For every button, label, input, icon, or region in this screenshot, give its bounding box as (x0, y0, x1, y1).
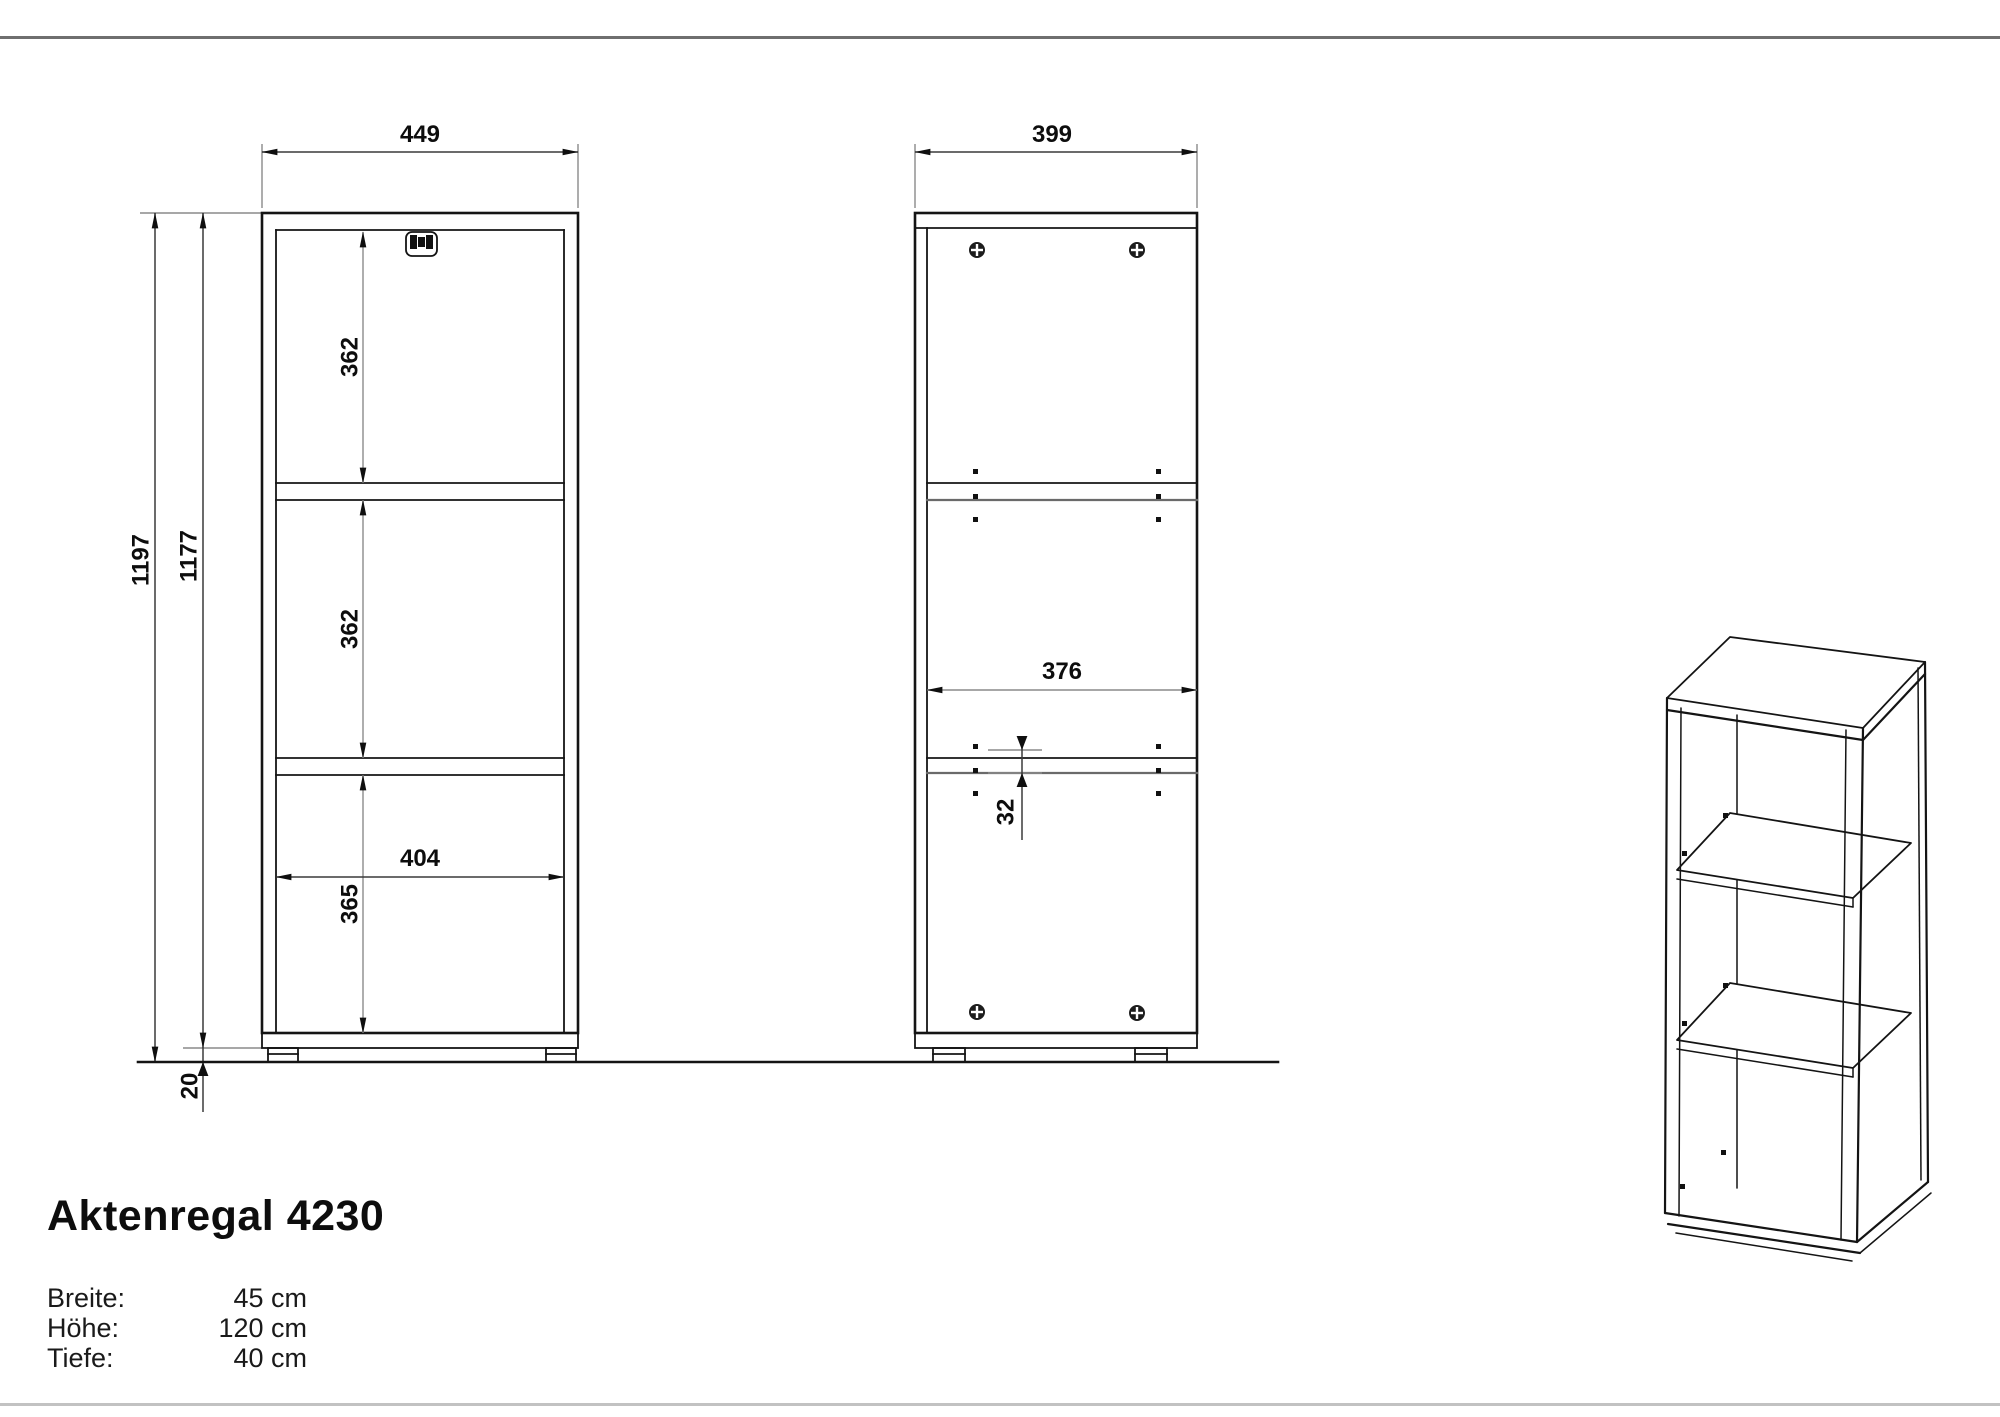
spec-value: 40 cm (195, 1343, 307, 1373)
spec-list: Breite: 45 cm Höhe: 120 cm Tiefe: 40 cm (47, 1283, 307, 1373)
screw-icon (969, 1004, 985, 1020)
front-cabinet-outline (262, 213, 578, 1033)
side-plinth (915, 1033, 1197, 1048)
front-feet (268, 1048, 576, 1062)
spec-row-hoehe: Höhe: 120 cm (47, 1313, 307, 1343)
screw-icon (1129, 242, 1145, 258)
front-section-middle-label: 362 (337, 609, 364, 649)
spec-label: Breite: (47, 1283, 195, 1313)
front-section-top-label: 362 (337, 337, 364, 377)
iso-view (1665, 637, 1931, 1261)
side-view: 399 (915, 121, 1197, 1062)
foot-height-label: 20 (177, 1073, 204, 1100)
spec-label: Tiefe: (47, 1343, 195, 1373)
front-total-height-label: 1197 (128, 534, 155, 586)
iso-shelves (1677, 813, 1911, 1077)
side-depth-label: 399 (1032, 121, 1072, 148)
spec-value: 45 cm (195, 1283, 307, 1313)
front-plinth (262, 1033, 578, 1048)
front-section-bottom-label: 365 (337, 884, 364, 924)
front-body-height-label: 1177 (176, 530, 203, 582)
product-title: Aktenregal 4230 (47, 1192, 384, 1241)
side-cabinet-outline (915, 213, 1197, 1033)
iso-base (1665, 1182, 1931, 1261)
front-width-label: 449 (400, 121, 440, 148)
side-inner-depth-label: 376 (1042, 658, 1082, 685)
spec-row-tiefe: Tiefe: 40 cm (47, 1343, 307, 1373)
spec-label: Höhe: (47, 1313, 195, 1343)
front-view: 449 1197 1177 20 (128, 121, 579, 1112)
front-inner-width-label: 404 (400, 845, 441, 872)
screw-icon (1129, 1005, 1145, 1021)
front-shelves (276, 483, 564, 775)
side-feet (933, 1048, 1167, 1062)
cam-lock-screws (969, 242, 1145, 1021)
top-fitting (406, 232, 437, 256)
shelf-pin-holes (973, 469, 1161, 796)
hole-pitch-label: 32 (993, 799, 1020, 826)
spec-row-breite: Breite: 45 cm (47, 1283, 307, 1313)
screw-icon (969, 242, 985, 258)
side-shelves (927, 483, 1197, 773)
drawing-sheet: 449 1197 1177 20 (0, 0, 2000, 1417)
hole-pitch-dim: 32 (988, 736, 1042, 840)
spec-value: 120 cm (195, 1313, 307, 1343)
